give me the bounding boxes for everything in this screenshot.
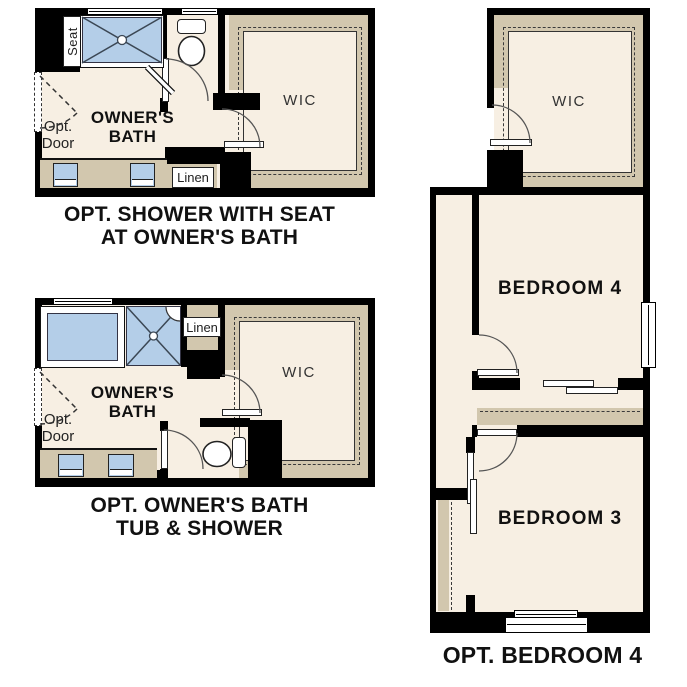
plan-caption: OPT. SHOWER WITH SEAT AT OWNER'S BATH — [27, 203, 372, 249]
wall — [487, 8, 650, 15]
wall — [466, 595, 475, 612]
wic-label: WIC — [537, 93, 601, 110]
bedroom3-door-leaf — [477, 429, 517, 436]
floor-plan-canvas: Seat Linen OWNER'S BATH Opt. Door WIC OP… — [0, 0, 687, 687]
wall — [368, 8, 375, 197]
plan-caption: OPT. OWNER'S BATH TUB & SHOWER — [27, 494, 372, 540]
sink — [58, 454, 84, 477]
wall — [368, 298, 375, 487]
window — [53, 298, 113, 305]
sink — [53, 163, 78, 187]
bedroom3-closet-dashed-line — [451, 502, 452, 610]
linen-closet-label: Linen — [183, 317, 221, 337]
wic-door-leaf — [490, 139, 532, 146]
wic-door-leaf — [224, 141, 264, 148]
bedroom3-closet-bypass-door — [470, 479, 477, 534]
wall — [618, 378, 643, 390]
wall — [187, 350, 220, 379]
wall — [517, 425, 643, 437]
wic-door-leaf — [222, 409, 262, 416]
wall — [430, 187, 436, 633]
bedroom3-label: BEDROOM 3 — [485, 509, 635, 528]
window — [505, 617, 588, 633]
sink — [130, 163, 155, 187]
opt-door-label: Opt. Door — [34, 118, 82, 152]
wic-label: WIC — [268, 92, 332, 109]
toilet-room-wall — [200, 418, 250, 427]
wall — [165, 147, 225, 164]
window — [181, 8, 218, 15]
closet-bypass-door — [543, 380, 594, 387]
tub-basin — [47, 313, 118, 361]
closet-bypass-door — [566, 387, 618, 394]
wall — [472, 378, 520, 390]
linen-closet-label: Linen — [172, 167, 214, 188]
wall — [248, 420, 282, 478]
wall — [220, 152, 251, 196]
seat-label: Seat — [65, 27, 80, 56]
wall — [472, 195, 479, 335]
owners-bath-label: OWNER'S BATH — [70, 383, 195, 421]
toilet-tank — [177, 19, 206, 34]
wall — [218, 305, 225, 377]
wall — [35, 188, 375, 197]
plan-caption: OPT. BEDROOM 4 — [425, 644, 660, 667]
wall — [487, 8, 494, 108]
toilet-tank — [232, 437, 246, 468]
window — [641, 302, 656, 368]
wic-label: WIC — [267, 364, 331, 381]
bedroom3-closet-shelf — [438, 500, 449, 611]
toilet-door-leaf — [161, 430, 168, 469]
owners-bath-label: OWNER'S BATH — [70, 108, 195, 146]
wall — [466, 437, 475, 453]
shower-seat: Seat — [63, 16, 81, 67]
wall — [430, 187, 650, 195]
sink — [108, 454, 134, 477]
wall — [35, 478, 375, 487]
bedroom4-label: BEDROOM 4 — [485, 279, 635, 298]
shower — [126, 306, 181, 366]
toilet-nook-wall — [218, 15, 225, 95]
opt-door-label: Opt. Door — [34, 411, 82, 445]
shower — [82, 17, 162, 63]
closet-shelf — [477, 408, 643, 425]
wall — [213, 93, 260, 110]
window — [87, 8, 163, 15]
wall — [157, 470, 167, 487]
bedroom4-door-leaf — [477, 369, 519, 376]
closet-shelf-dashed-line — [480, 411, 640, 412]
